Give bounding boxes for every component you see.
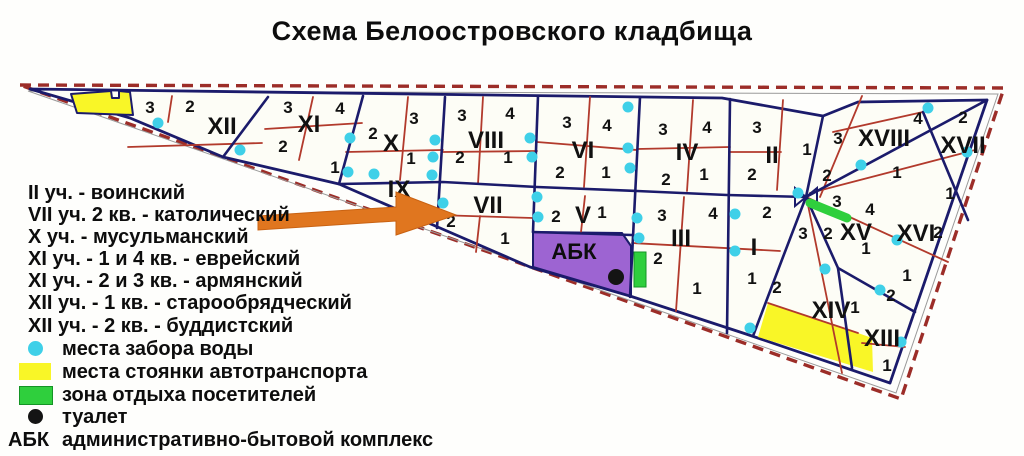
quarter-label: 2 [551, 207, 560, 226]
quarter-label: 1 [699, 165, 708, 184]
quarter-label: 1 [850, 298, 859, 317]
quarter-label: 4 [602, 116, 612, 135]
legend-item-label: VII уч. 2 кв. - католический [28, 203, 290, 227]
section-label-XII: XII [207, 113, 236, 140]
quarter-label: 2 [958, 108, 967, 127]
quarter-label: 4 [865, 200, 875, 219]
abk-legend-prefix: АБК [8, 428, 49, 452]
water-dot [875, 285, 886, 296]
water-dot [632, 213, 643, 224]
quarter-label: 2 [772, 278, 781, 297]
quarter-label: 1 [597, 203, 606, 222]
legend-item-label: административно-бытовой комплекс [62, 428, 433, 452]
water-dot [793, 188, 804, 199]
quarter-label: 2 [555, 163, 564, 182]
section-label-I: I [751, 234, 758, 261]
toilet-legend-icon [28, 409, 43, 424]
quarter-label: 1 [902, 266, 911, 285]
water-dot [427, 170, 438, 181]
quarter-label: 1 [802, 140, 811, 159]
section-label-XIV: XIV [812, 297, 851, 324]
water-dot [533, 212, 544, 223]
quarter-label: 1 [330, 158, 339, 177]
quarter-label: 2 [747, 165, 756, 184]
water-dot [428, 152, 439, 163]
section-label-X: X [383, 130, 399, 157]
legend-item-label: X уч. - мусульманский [28, 225, 249, 249]
quarter-label: 4 [702, 118, 712, 137]
water-dot [369, 169, 380, 180]
quarter-label: 2 [278, 137, 287, 156]
section-label-VII: VII [473, 192, 502, 219]
quarter-label: 4 [913, 109, 923, 128]
legend-item-label: места стоянки автотранспорта [62, 360, 367, 384]
quarter-label: 3 [798, 224, 807, 243]
section-label-XVIII: XVIII [858, 125, 910, 152]
abk-zone-label: АБК [551, 239, 597, 264]
quarter-label: 3 [832, 192, 841, 211]
section-label-III: III [671, 225, 691, 252]
section-label-VI: VI [572, 137, 595, 164]
water-dot [745, 323, 756, 334]
quarter-label: 2 [661, 170, 670, 189]
water-dot [923, 103, 934, 114]
quarter-label: 1 [945, 184, 954, 203]
quarter-label: 2 [653, 249, 662, 268]
quarter-label: 1 [861, 239, 870, 258]
legend-item-label: места забора воды [62, 337, 253, 361]
water-dot [532, 192, 543, 203]
section-label-XVI: XVI [897, 220, 936, 247]
legend-item-label: зона отдыха посетителей [62, 383, 316, 407]
section-label-XI: XI [298, 111, 321, 138]
quarter-label: 2 [762, 203, 771, 222]
quarter-label: 3 [145, 98, 154, 117]
quarter-label: 1 [747, 269, 756, 288]
quarter-label: 3 [562, 113, 571, 132]
water-dot [525, 133, 536, 144]
legend-item-label: XI уч. - 2 и 3 кв. - армянский [28, 269, 303, 293]
water-dot [856, 160, 867, 171]
legend-item-label: XII уч. - 2 кв. - буддистский [28, 314, 293, 338]
quarter-label: 1 [882, 356, 891, 375]
section-label-VIII: VIII [468, 127, 504, 154]
quarter-label: 4 [335, 99, 345, 118]
quarter-label: 1 [406, 149, 415, 168]
water-dot [235, 145, 246, 156]
section-label-V: V [575, 202, 591, 229]
quarter-label: 2 [185, 97, 194, 116]
water-legend-icon [28, 341, 43, 356]
section-label-XVII: XVII [940, 132, 985, 159]
water-dot [153, 118, 164, 129]
water-dot [345, 133, 356, 144]
abk-zone-label-text: АБК [551, 239, 597, 264]
quarter-label: 1 [692, 279, 701, 298]
quarter-label: 3 [457, 106, 466, 125]
water-dot [634, 233, 645, 244]
parking-legend-icon [19, 363, 51, 380]
cemetery-map-page: Схема Белоостровского кладбища [0, 0, 1024, 456]
quarter-label: 4 [708, 204, 718, 223]
quarter-label: 2 [368, 124, 377, 143]
quarter-label: 3 [833, 129, 842, 148]
quarter-label: 3 [657, 206, 666, 225]
water-dot [730, 246, 741, 257]
water-dot [623, 143, 634, 154]
legend-item-label: XI уч. - 1 и 4 кв. - еврейский [28, 247, 300, 271]
water-dot [438, 198, 449, 209]
water-dot [625, 163, 636, 174]
water-dot [430, 135, 441, 146]
recreation-zone-center [634, 252, 646, 287]
legend-item-label: II уч. - воинский [28, 181, 185, 205]
quarter-label: 2 [886, 286, 895, 305]
quarter-label: 2 [822, 166, 831, 185]
quarter-label: 3 [283, 98, 292, 117]
water-dot [343, 167, 354, 178]
quarter-label: 1 [500, 229, 509, 248]
quarter-label: 2 [933, 223, 942, 242]
water-dot [730, 209, 741, 220]
quarter-label: 2 [823, 224, 832, 243]
recreation-legend-icon [19, 386, 53, 405]
water-dot [623, 102, 634, 113]
quarter-label: 3 [658, 120, 667, 139]
quarter-label: 3 [752, 118, 761, 137]
water-dot [527, 152, 538, 163]
quarter-label: 2 [455, 148, 464, 167]
legend-item-label: XII уч. - 1 кв. - старообрядческий [28, 291, 352, 315]
quarter-label: 1 [503, 148, 512, 167]
quarter-label: 1 [892, 163, 901, 182]
quarter-label: 1 [601, 163, 610, 182]
water-dot [820, 264, 831, 275]
section-label-II: II [765, 142, 778, 169]
section-label-IV: IV [676, 139, 699, 166]
parking-zone-west [71, 91, 133, 115]
quarter-label: 4 [505, 104, 515, 123]
legend-item-label: туалет [62, 405, 127, 429]
toilet-dot [608, 269, 624, 285]
section-label-XIII: XIII [864, 325, 900, 352]
toilet-marker [608, 269, 624, 285]
quarter-label: 3 [409, 109, 418, 128]
